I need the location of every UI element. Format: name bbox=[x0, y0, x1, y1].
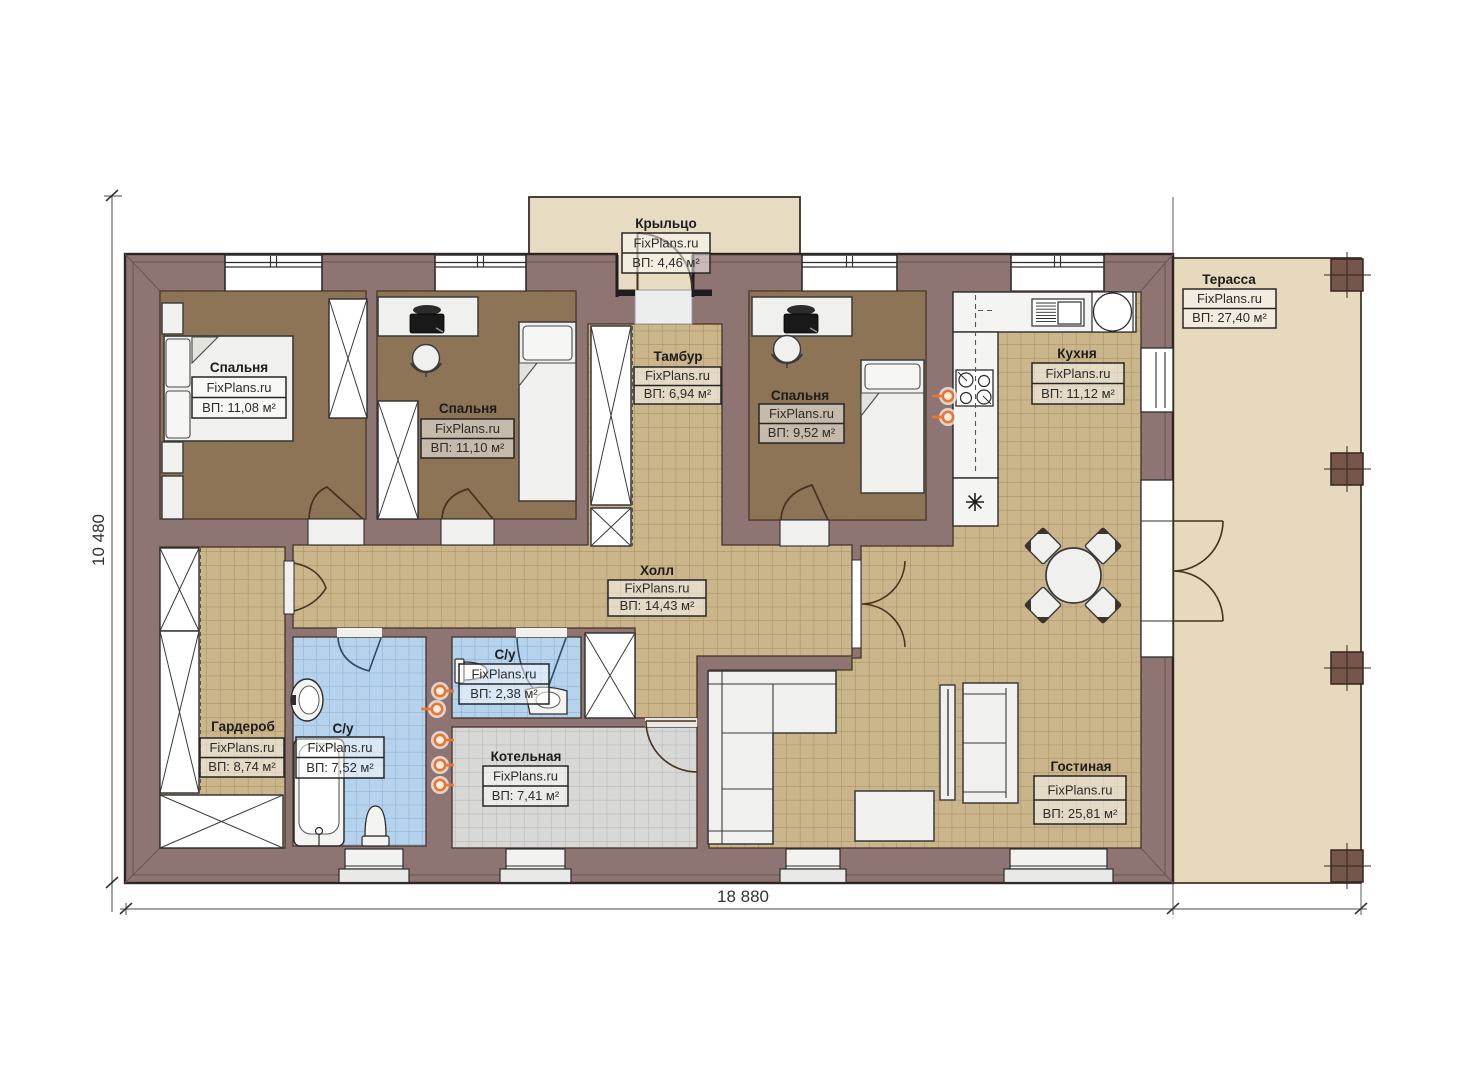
svg-text:FixPlans.ru: FixPlans.ru bbox=[769, 406, 834, 421]
svg-text:ВП: 7,41 м²: ВП: 7,41 м² bbox=[492, 788, 560, 803]
svg-text:FixPlans.ru: FixPlans.ru bbox=[307, 740, 372, 755]
svg-text:FixPlans.ru: FixPlans.ru bbox=[471, 667, 536, 682]
svg-text:Гардероб: Гардероб bbox=[211, 719, 275, 734]
svg-text:ВП: 8,74 м²: ВП: 8,74 м² bbox=[208, 759, 276, 774]
svg-text:FixPlans.ru: FixPlans.ru bbox=[624, 581, 689, 596]
svg-text:ВП: 25,81 м²: ВП: 25,81 м² bbox=[1043, 806, 1118, 821]
svg-text:FixPlans.ru: FixPlans.ru bbox=[633, 236, 698, 251]
svg-text:С/у: С/у bbox=[494, 647, 516, 662]
svg-text:ВП: 11,08 м²: ВП: 11,08 м² bbox=[202, 400, 276, 415]
svg-text:Терасса: Терасса bbox=[1202, 272, 1256, 287]
svg-text:Кухня: Кухня bbox=[1057, 346, 1096, 361]
svg-text:ВП: 9,52 м²: ВП: 9,52 м² bbox=[768, 425, 836, 440]
svg-text:Спальня: Спальня bbox=[210, 360, 268, 375]
svg-text:Котельная: Котельная bbox=[491, 749, 562, 764]
svg-text:FixPlans.ru: FixPlans.ru bbox=[435, 421, 500, 436]
svg-text:С/у: С/у bbox=[332, 721, 354, 736]
svg-text:FixPlans.ru: FixPlans.ru bbox=[206, 380, 271, 395]
svg-text:FixPlans.ru: FixPlans.ru bbox=[209, 740, 274, 755]
svg-text:Тамбур: Тамбур bbox=[654, 349, 703, 364]
svg-text:Гостиная: Гостиная bbox=[1050, 759, 1111, 774]
svg-text:FixPlans.ru: FixPlans.ru bbox=[1197, 291, 1262, 306]
svg-text:Спальня: Спальня bbox=[439, 401, 497, 416]
svg-text:ВП: 6,94 м²: ВП: 6,94 м² bbox=[644, 386, 712, 401]
svg-text:ВП: 11,10 м²: ВП: 11,10 м² bbox=[431, 440, 505, 455]
svg-text:10 480: 10 480 bbox=[89, 514, 108, 566]
svg-text:ВП: 7,52 м²: ВП: 7,52 м² bbox=[306, 760, 374, 775]
svg-text:ВП: 11,12 м²: ВП: 11,12 м² bbox=[1041, 386, 1115, 401]
svg-text:Спальня: Спальня bbox=[771, 388, 829, 403]
svg-text:Холл: Холл bbox=[640, 563, 674, 578]
svg-text:Крыльцо: Крыльцо bbox=[635, 216, 696, 231]
svg-text:18 880: 18 880 bbox=[717, 887, 769, 906]
svg-text:ВП: 27,40 м²: ВП: 27,40 м² bbox=[1192, 310, 1267, 325]
svg-text:FixPlans.ru: FixPlans.ru bbox=[1047, 783, 1112, 798]
svg-text:ВП: 14,43 м²: ВП: 14,43 м² bbox=[620, 598, 695, 613]
svg-text:ВП: 4,46 м²: ВП: 4,46 м² bbox=[632, 255, 700, 270]
svg-text:FixPlans.ru: FixPlans.ru bbox=[1045, 366, 1110, 381]
svg-text:FixPlans.ru: FixPlans.ru bbox=[645, 368, 710, 383]
svg-text:ВП: 2,38 м²: ВП: 2,38 м² bbox=[470, 686, 538, 701]
svg-text:FixPlans.ru: FixPlans.ru bbox=[493, 769, 558, 784]
